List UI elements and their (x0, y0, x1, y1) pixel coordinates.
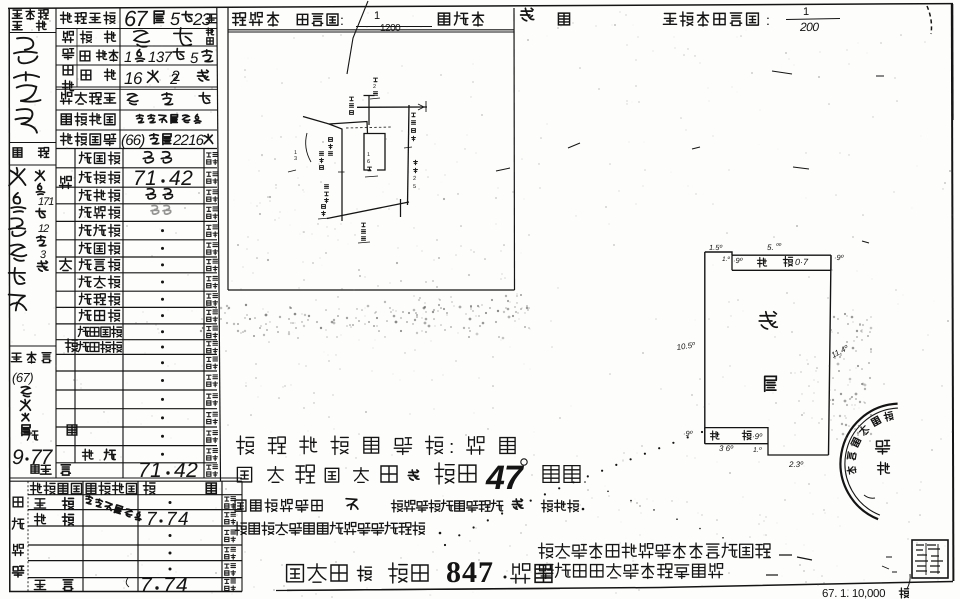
svg-text:137: 137 (148, 49, 173, 66)
svg-text:1.º: 1.º (722, 256, 730, 263)
svg-text:1: 1 (124, 49, 132, 66)
svg-text:3: 3 (40, 249, 47, 261)
svg-text:42: 42 (174, 459, 198, 482)
svg-text:2216: 2216 (172, 132, 205, 149)
svg-text:0·7: 0·7 (795, 257, 809, 267)
svg-text:5: 5 (413, 184, 416, 190)
svg-text:16: 16 (124, 69, 143, 88)
svg-text:1: 1 (803, 6, 809, 18)
svg-text:1: 1 (374, 10, 380, 22)
svg-text:6: 6 (367, 159, 370, 165)
svg-text:3 6º: 3 6º (719, 444, 734, 453)
svg-text:1.º: 1.º (753, 447, 762, 454)
svg-text:67: 67 (124, 6, 148, 31)
svg-text:47: 47 (485, 459, 525, 497)
svg-text:42: 42 (169, 167, 193, 190)
svg-text:2: 2 (413, 176, 416, 182)
svg-text:4: 4 (176, 574, 188, 597)
svg-text:4: 4 (178, 509, 189, 530)
svg-text::: : (340, 12, 344, 28)
svg-text:·9º: ·9º (834, 253, 845, 262)
svg-text:7: 7 (163, 574, 176, 597)
svg-text:71: 71 (133, 167, 157, 190)
svg-text:1: 1 (367, 152, 370, 158)
svg-text:171: 171 (38, 196, 54, 208)
svg-text:1.5º: 1.5º (709, 243, 723, 252)
svg-text::: : (766, 12, 770, 28)
svg-text:12: 12 (38, 223, 49, 235)
svg-text:7: 7 (140, 574, 153, 597)
svg-text:5: 5 (190, 50, 199, 67)
svg-text:847: 847 (446, 556, 494, 589)
svg-text:·9º: ·9º (733, 256, 744, 265)
svg-text:67. 1. 10,000: 67. 1. 10,000 (822, 588, 885, 599)
svg-text:ºº: ºº (776, 243, 782, 250)
svg-text:2: 2 (373, 84, 376, 90)
svg-text:2: 2 (169, 71, 179, 88)
svg-text:71: 71 (138, 459, 162, 482)
svg-text:(67): (67) (12, 370, 33, 385)
svg-text:·9º: ·9º (752, 432, 763, 441)
svg-text:7: 7 (166, 509, 178, 530)
svg-text:9: 9 (12, 446, 24, 469)
svg-text:(66): (66) (121, 132, 145, 149)
svg-text:200: 200 (799, 20, 819, 34)
svg-text:5: 5 (170, 9, 181, 29)
svg-text:5.: 5. (767, 243, 774, 252)
svg-text:2.3º: 2.3º (788, 460, 804, 469)
svg-text:7: 7 (146, 509, 158, 530)
svg-text::: : (449, 437, 454, 458)
svg-text:3: 3 (294, 156, 297, 162)
